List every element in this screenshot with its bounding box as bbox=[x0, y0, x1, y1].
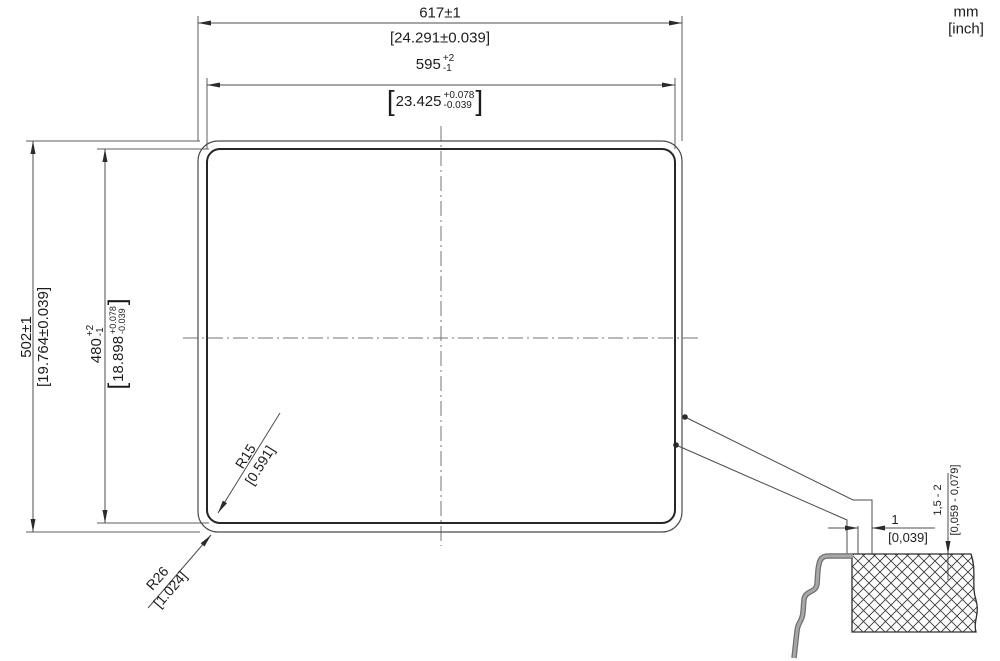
bracket-open: [ bbox=[106, 382, 130, 391]
dim-cutout-height-inch: [18.898+0.078-0.039] bbox=[106, 297, 130, 390]
bracket-open: [ bbox=[386, 89, 396, 113]
tolerance-minus: -1 bbox=[443, 64, 454, 74]
dim-cutout-height-inch-value: 18.898 bbox=[110, 336, 127, 382]
units-imperial-label: [inch] bbox=[948, 21, 984, 38]
dim-outer-width-mm: 617±1 bbox=[419, 5, 461, 22]
dimension-lines bbox=[33, 23, 948, 580]
dim-cutout-height-mm: 480+2-1 bbox=[86, 325, 106, 363]
section-recess: 1,5 - 2 [0,059 - 0,079] bbox=[930, 465, 964, 536]
units-metric-label: mm bbox=[954, 4, 979, 21]
sink-outer-outline bbox=[198, 141, 682, 532]
section-recess-mm: 1,5 - 2 bbox=[930, 484, 947, 515]
tolerance-minus: -1 bbox=[96, 325, 106, 336]
dim-outer-height-mm: 502±1 bbox=[18, 316, 35, 358]
centerlines bbox=[183, 126, 699, 546]
countertop-section-block bbox=[852, 554, 977, 632]
sink-cutout-technical-drawing: mm [inch] 617±1 [24.291±0.039] 595+2-1 [… bbox=[0, 0, 1000, 661]
section-leader-lines bbox=[676, 417, 872, 554]
dim-outer-height-inch: [19.764±0.039] bbox=[35, 287, 52, 387]
dim-cutout-height: 480+2-1 [18.898+0.078-0.039] bbox=[86, 297, 130, 390]
bracket-close: ] bbox=[474, 89, 484, 113]
bracket-close: ] bbox=[106, 297, 130, 306]
sink-rim-profile bbox=[794, 556, 853, 658]
dim-outer-height: 502±1 [19.764±0.039] bbox=[18, 287, 52, 387]
dim-cutout-width-mm: 595+2-1 bbox=[416, 54, 454, 74]
dim-cutout-width-value: 595 bbox=[416, 56, 441, 73]
drawing-linework bbox=[0, 0, 1000, 661]
dim-cutout-width-inch: [23.425+0.078-0.039] bbox=[386, 89, 484, 113]
section-gap-inch: [0,039] bbox=[888, 531, 928, 545]
dim-cutout-height-value: 480 bbox=[88, 338, 105, 363]
dim-cutout-width-inch-value: 23.425 bbox=[396, 93, 442, 110]
arrowheads bbox=[31, 21, 951, 555]
dim-outer-width-inch: [24.291±0.039] bbox=[390, 30, 490, 47]
section-recess-inch: [0,059 - 0,079] bbox=[947, 465, 964, 536]
tolerance-minus: -0.039 bbox=[444, 101, 475, 111]
section-gap-mm: 1 bbox=[891, 513, 898, 527]
extension-lines bbox=[26, 16, 682, 532]
tolerance-minus: -0.039 bbox=[118, 306, 127, 334]
